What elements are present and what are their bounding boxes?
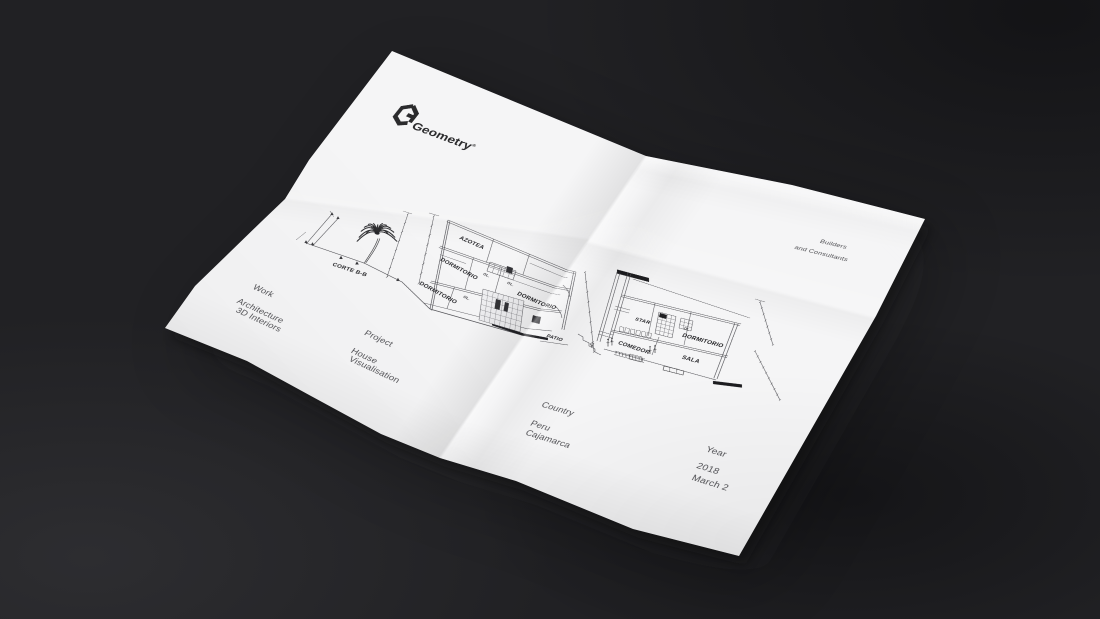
- svg-text:AZOTEA: AZOTEA: [458, 235, 486, 251]
- svg-text:CORTE B-B: CORTE B-B: [331, 262, 368, 279]
- svg-text:DORMITORIO: DORMITORIO: [438, 257, 479, 281]
- svg-text:OL.: OL.: [482, 272, 491, 278]
- svg-text:STAR: STAR: [634, 316, 653, 325]
- svg-text:OL.: OL.: [506, 281, 515, 287]
- svg-text:SALA: SALA: [680, 355, 701, 366]
- svg-text:OL: OL: [683, 326, 691, 331]
- svg-text:PATIO: PATIO: [545, 333, 564, 342]
- svg-text:OL.: OL.: [462, 295, 471, 301]
